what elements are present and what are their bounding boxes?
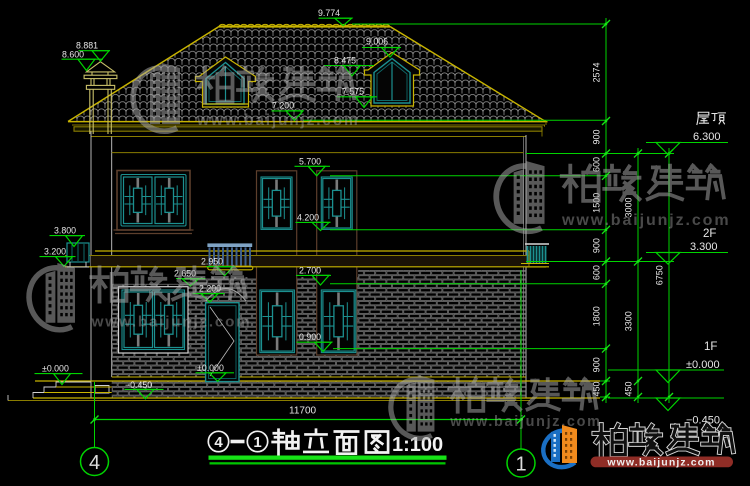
svg-text:7.200: 7.200 xyxy=(272,101,294,111)
svg-text:1F: 1F xyxy=(704,341,717,353)
svg-text:8.600: 8.600 xyxy=(62,49,84,59)
svg-text:0.900: 0.900 xyxy=(299,332,321,342)
svg-text:www.baijunjz.com: www.baijunjz.com xyxy=(91,314,252,331)
svg-text:1800: 1800 xyxy=(592,306,602,326)
svg-text:www.baijunjz.com: www.baijunjz.com xyxy=(561,212,731,229)
svg-text:9.006: 9.006 xyxy=(366,37,388,47)
svg-text:8.475: 8.475 xyxy=(334,56,356,66)
svg-text:−0.450: −0.450 xyxy=(686,415,720,427)
svg-text:900: 900 xyxy=(592,357,602,372)
svg-text:−0.450: −0.450 xyxy=(125,380,152,390)
svg-text:2574: 2574 xyxy=(592,62,602,82)
svg-text:450: 450 xyxy=(624,381,634,396)
svg-text:900: 900 xyxy=(592,238,602,253)
svg-text:4: 4 xyxy=(89,452,100,474)
svg-text:3.200: 3.200 xyxy=(44,246,66,256)
svg-text:www.baijunjz.com: www.baijunjz.com xyxy=(449,414,601,430)
svg-text:±0.000: ±0.000 xyxy=(686,359,720,371)
svg-text:900: 900 xyxy=(592,129,602,144)
svg-text:2F: 2F xyxy=(703,228,716,240)
svg-text:6.300: 6.300 xyxy=(693,131,721,143)
svg-text:www.baijunjz.com: www.baijunjz.com xyxy=(196,112,360,129)
svg-text:3.300: 3.300 xyxy=(690,241,718,253)
svg-text:4: 4 xyxy=(214,434,223,451)
svg-text:3.800: 3.800 xyxy=(54,225,76,235)
svg-text:1: 1 xyxy=(253,434,261,451)
svg-text:4.200: 4.200 xyxy=(297,212,319,222)
svg-text:600: 600 xyxy=(592,265,602,280)
svg-text:11700: 11700 xyxy=(289,406,317,417)
svg-text:3300: 3300 xyxy=(624,311,634,331)
svg-text:6750: 6750 xyxy=(655,265,665,285)
svg-text:2.700: 2.700 xyxy=(299,265,321,275)
svg-text:±0.000: ±0.000 xyxy=(197,363,224,373)
svg-text:2.950: 2.950 xyxy=(201,256,223,266)
svg-text:600: 600 xyxy=(592,157,602,172)
svg-text:±0.000: ±0.000 xyxy=(42,364,69,374)
svg-text:www.baijunjz.com: www.baijunjz.com xyxy=(606,456,715,468)
svg-text:1: 1 xyxy=(515,454,526,476)
svg-text:5.700: 5.700 xyxy=(299,156,321,166)
svg-text:9.774: 9.774 xyxy=(318,8,340,18)
